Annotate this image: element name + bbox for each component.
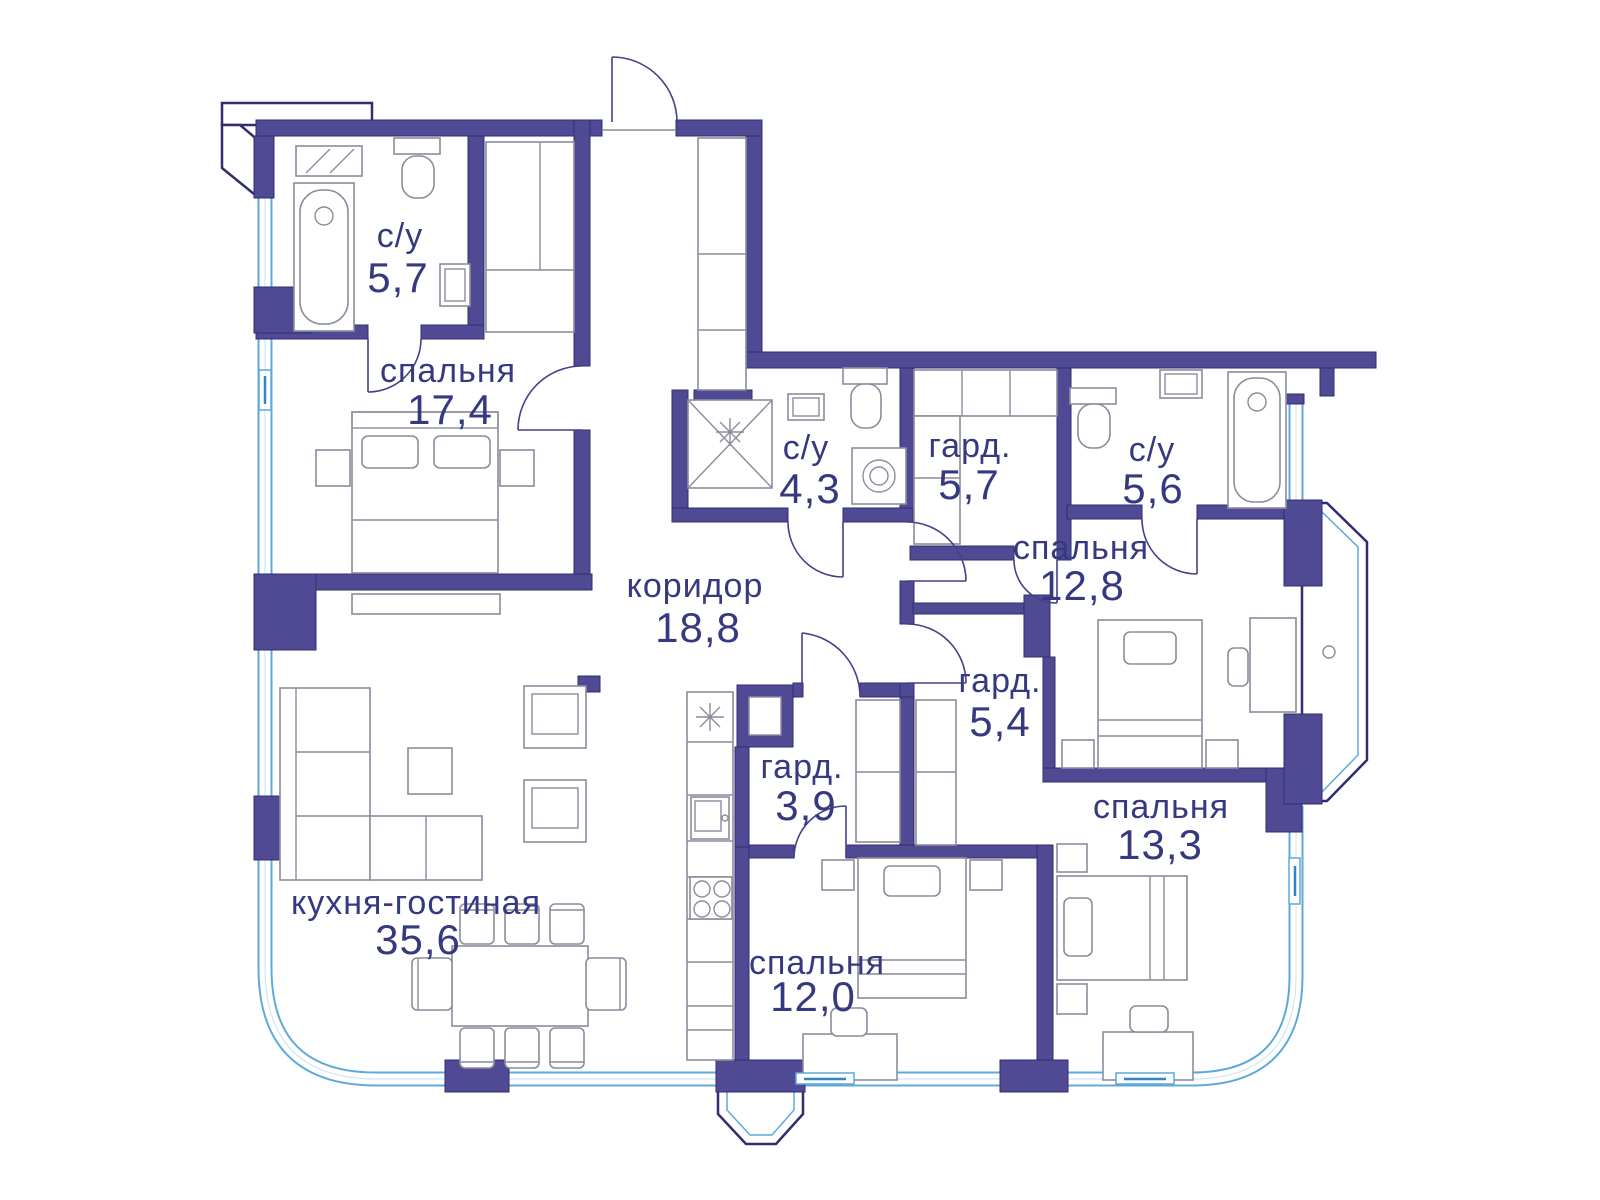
nightstand-icon bbox=[970, 860, 1002, 890]
duct-shaft bbox=[749, 697, 781, 735]
room-area: 5,6 bbox=[1122, 465, 1183, 512]
room-area: 5,7 bbox=[938, 461, 999, 508]
nightstand-icon bbox=[1206, 740, 1238, 768]
nightstand-icon bbox=[316, 450, 350, 486]
dining-table-icon bbox=[452, 946, 588, 1026]
entry-furniture bbox=[602, 130, 746, 390]
room-area: 4,3 bbox=[779, 465, 840, 512]
shelves-icon bbox=[856, 700, 900, 842]
entry-door-icon bbox=[612, 57, 677, 122]
nightstand-icon bbox=[1062, 740, 1094, 768]
room-area: 3,9 bbox=[775, 782, 836, 829]
living-room-furniture bbox=[280, 686, 626, 1068]
nightstand-icon bbox=[822, 860, 854, 890]
room-label: гард. bbox=[761, 748, 844, 786]
wardrobe-3-furniture bbox=[856, 700, 900, 842]
bay-window-bottom bbox=[718, 1086, 803, 1144]
chair-icon bbox=[1228, 648, 1248, 686]
room-area: 12,8 bbox=[1039, 562, 1125, 609]
kitchen-counter bbox=[687, 692, 733, 1060]
floor-plan: с/у 5,7 спальня 17,4 с/у 4,3 гард. 5,7 с… bbox=[0, 0, 1600, 1200]
bedroom-2-furniture bbox=[1062, 618, 1296, 768]
kitchen-sink-icon bbox=[691, 797, 729, 839]
toilet-icon bbox=[843, 368, 887, 384]
toilet-icon bbox=[394, 138, 440, 154]
nightstand-icon bbox=[500, 450, 534, 486]
room-label: с/у bbox=[1129, 431, 1175, 469]
sofa-icon bbox=[280, 688, 370, 880]
nightstand-icon bbox=[1057, 984, 1087, 1014]
fridge-icon bbox=[696, 703, 724, 731]
room-label: гард. bbox=[929, 427, 1012, 465]
door-icon bbox=[802, 633, 860, 697]
door-icon bbox=[788, 522, 843, 577]
washing-machine-icon bbox=[852, 448, 906, 504]
room-area: 13,3 bbox=[1117, 821, 1203, 868]
bedroom-3-furniture bbox=[1057, 844, 1193, 1080]
room-label: спальня bbox=[380, 352, 516, 390]
room-area: 5,7 bbox=[367, 254, 428, 301]
room-label: с/у bbox=[377, 217, 423, 255]
door-icon bbox=[907, 624, 966, 683]
hall-closet-icon bbox=[698, 138, 746, 390]
room-label: гард. bbox=[959, 662, 1042, 700]
room-area: 12,0 bbox=[770, 973, 856, 1020]
door-icon bbox=[518, 366, 582, 430]
wardrobe-2-furniture bbox=[916, 700, 956, 845]
room-area: 17,4 bbox=[407, 386, 493, 433]
side-table-icon bbox=[408, 748, 452, 794]
room-area: 5,4 bbox=[969, 698, 1030, 745]
armchair-icon bbox=[524, 780, 586, 842]
kitchen-counter-icon bbox=[687, 692, 733, 1060]
room-label: коридор bbox=[627, 567, 764, 605]
toilet-icon bbox=[1070, 388, 1116, 404]
room-area: 18,8 bbox=[655, 604, 741, 651]
shelves-icon bbox=[914, 370, 1057, 416]
floor-plan-drawing: с/у 5,7 спальня 17,4 с/у 4,3 гард. 5,7 с… bbox=[0, 0, 1600, 1200]
desk-icon bbox=[1250, 618, 1296, 712]
armchair-icon bbox=[524, 686, 586, 748]
door-icon bbox=[1142, 519, 1197, 574]
nightstand-icon bbox=[1057, 844, 1087, 872]
room-area: 35,6 bbox=[375, 916, 461, 963]
room-label: с/у bbox=[783, 429, 829, 467]
wardrobe-icon bbox=[486, 142, 574, 332]
chair-icon bbox=[1130, 1006, 1168, 1032]
console-icon bbox=[352, 594, 500, 614]
